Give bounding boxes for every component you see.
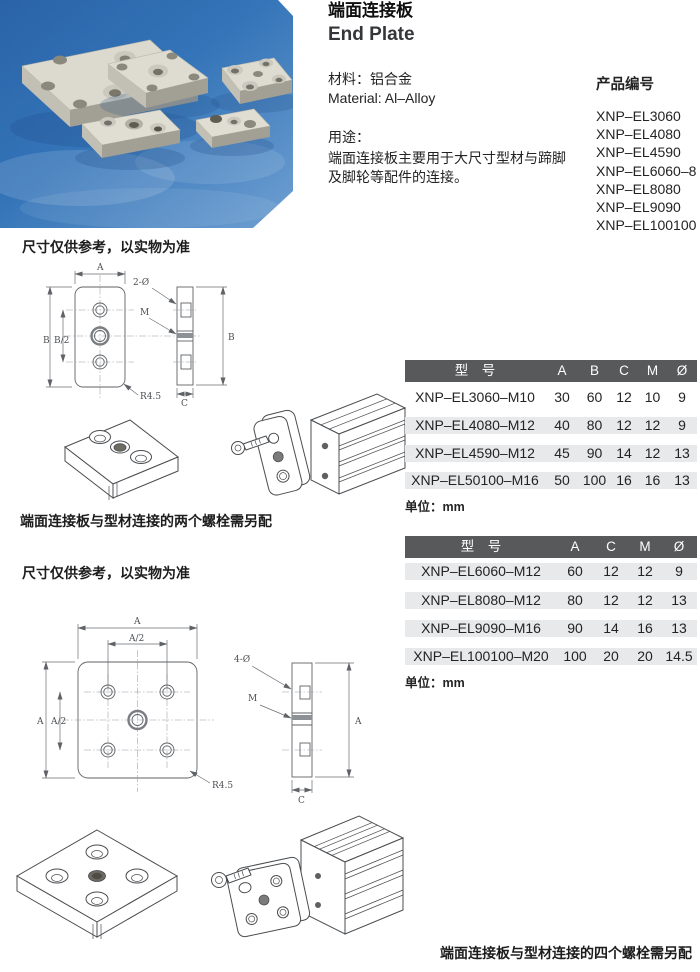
disclaimer-note-2: 尺寸仅供参考，以实物为准: [22, 563, 190, 583]
isometric-square-plate: [15, 812, 190, 947]
value-cell: 12: [629, 563, 661, 580]
value-cell: 80: [557, 592, 593, 609]
catalog-page: 端面连接板 End Plate 材料：铝合金 Material: Al–Allo…: [0, 0, 700, 972]
value-cell: 10: [638, 389, 667, 406]
value-cell: 12: [610, 389, 638, 406]
value-cell: 14: [610, 445, 638, 462]
dim-column-header: M: [638, 360, 667, 382]
table-row: XNP–EL50100–M1650100161613: [405, 472, 697, 489]
value-cell: 40: [545, 417, 579, 434]
assembly-drawing-four-bolt: [205, 806, 410, 972]
usage-heading: 用途：: [328, 128, 370, 146]
dim-label-a-side: A: [354, 717, 362, 727]
value-cell: 20: [593, 648, 629, 665]
product-code-item: XNP–EL9090: [596, 198, 696, 216]
table-row: XNP–EL100100–M20100202014.5: [405, 648, 697, 665]
value-cell: 30: [545, 389, 579, 406]
value-cell: 90: [557, 620, 593, 637]
usage-line-1: 端面连接板主要用于大尺寸型材与蹄脚: [328, 149, 566, 167]
product-photo-image: [0, 0, 295, 228]
caption-four-bolts: 端面连接板与型材连接的四个螺栓需另配: [405, 943, 692, 963]
table-row: XNP–EL9090–M1690141613: [405, 620, 697, 637]
model-column-header: 型 号: [405, 360, 545, 382]
caption-two-bolts: 端面连接板与型材连接的两个螺栓需另配: [20, 511, 272, 531]
radius-label: R4.5: [140, 392, 161, 402]
value-cell: 60: [557, 563, 593, 580]
model-cell: XNP–EL100100–M20: [405, 648, 557, 665]
model-cell: XNP–EL4080–M12: [405, 417, 545, 434]
model-cell: XNP–EL9090–M16: [405, 620, 557, 637]
value-cell: 13: [667, 472, 697, 489]
page-title-cn: 端面连接板: [328, 0, 413, 22]
product-codes-list: XNP–EL3060XNP–EL4080XNP–EL4590XNP–EL6060…: [596, 107, 696, 234]
dimension-drawing-square-plate: A A/2 A A/2 R4.5 4-Ø M A C: [28, 612, 368, 812]
radius-label-2: R4.5: [212, 781, 233, 791]
usage-line-2: 及脚轮等配件的连接。: [328, 168, 468, 186]
leader-label-holes-2: 4-Ø: [234, 654, 250, 665]
value-cell: 16: [610, 472, 638, 489]
dim-column-header: Ø: [667, 360, 697, 382]
dim-column-header: B: [579, 360, 610, 382]
value-cell: 20: [629, 648, 661, 665]
dim-label-a-left: A: [36, 717, 44, 727]
dim-label-b2: B/2: [54, 336, 69, 346]
dim-label-a2-left: A/2: [50, 717, 66, 727]
table-row: XNP–EL3060–M10306012109: [405, 389, 697, 406]
dim-column-header: C: [593, 536, 629, 558]
value-cell: 12: [610, 417, 638, 434]
value-cell: 90: [579, 445, 610, 462]
value-cell: 50: [545, 472, 579, 489]
table-row: XNP–EL4080–M12408012129: [405, 417, 697, 434]
value-cell: 14: [593, 620, 629, 637]
value-cell: 80: [579, 417, 610, 434]
value-cell: 12: [638, 417, 667, 434]
product-code-item: XNP–EL3060: [596, 107, 696, 125]
value-cell: 9: [667, 389, 697, 406]
dim-label-c-2: C: [298, 796, 305, 806]
value-cell: 12: [629, 592, 661, 609]
dim-column-header: M: [629, 536, 661, 558]
product-codes-heading: 产品编号: [596, 76, 654, 94]
page-title-en: End Plate: [328, 23, 415, 47]
dim-label-a: A: [96, 263, 104, 273]
value-cell: 100: [579, 472, 610, 489]
model-cell: XNP–EL3060–M10: [405, 389, 545, 406]
product-code-item: XNP–EL8080: [596, 180, 696, 198]
dim-column-header: Ø: [661, 536, 697, 558]
value-cell: 60: [579, 389, 610, 406]
dim-label-a-top: A: [133, 617, 141, 627]
model-cell: XNP–EL8080–M12: [405, 592, 557, 609]
product-code-item: XNP–EL6060–8: [596, 162, 696, 180]
value-cell: 13: [667, 445, 697, 462]
value-cell: 12: [593, 592, 629, 609]
isometric-rect-plate: [35, 408, 195, 513]
spec-table-square-plates: 型 号ACMØXNP–EL6060–M126012129XNP–EL8080–M…: [405, 536, 697, 691]
value-cell: 9: [661, 563, 697, 580]
disclaimer-note-1: 尺寸仅供参考，以实物为准: [22, 237, 190, 257]
model-column-header: 型 号: [405, 536, 557, 558]
value-cell: 16: [629, 620, 661, 637]
leader-label-thread: M: [140, 308, 149, 318]
material-cn: 材料：铝合金: [328, 70, 412, 88]
dim-label-b-side: B: [228, 333, 235, 343]
product-code-item: XNP–EL100100: [596, 216, 696, 234]
product-code-item: XNP–EL4590: [596, 143, 696, 161]
dimension-drawing-rect-plate: A B B/2 2-Ø M B C R4.5: [30, 258, 245, 408]
model-cell: XNP–EL6060–M12: [405, 563, 557, 580]
unit-note: 单位：mm: [405, 496, 697, 515]
assembly-drawing-two-bolt: [225, 390, 405, 515]
value-cell: 45: [545, 445, 579, 462]
product-code-item: XNP–EL4080: [596, 125, 696, 143]
material-en: Material: Al–Alloy: [328, 89, 435, 107]
product-photo: [0, 0, 295, 228]
spec-table-rect-plates: 型 号ABCMØXNP–EL3060–M10306012109XNP–EL408…: [405, 360, 697, 515]
model-cell: XNP–EL50100–M16: [405, 472, 545, 489]
leader-label-holes: 2-Ø: [133, 277, 149, 288]
value-cell: 13: [661, 620, 697, 637]
table-row: XNP–EL6060–M126012129: [405, 563, 697, 580]
dim-column-header: C: [610, 360, 638, 382]
dim-label-a2-top: A/2: [128, 634, 144, 644]
value-cell: 12: [593, 563, 629, 580]
value-cell: 9: [667, 417, 697, 434]
model-cell: XNP–EL4590–M12: [405, 445, 545, 462]
table-row: XNP–EL4590–M124590141213: [405, 445, 697, 462]
value-cell: 14.5: [661, 648, 697, 665]
value-cell: 12: [638, 445, 667, 462]
dim-column-header: A: [557, 536, 593, 558]
leader-label-thread-2: M: [248, 694, 257, 704]
dim-label-b: B: [43, 336, 50, 346]
value-cell: 13: [661, 592, 697, 609]
value-cell: 16: [638, 472, 667, 489]
unit-note: 单位：mm: [405, 672, 697, 691]
table-row: XNP–EL8080–M1280121213: [405, 592, 697, 609]
value-cell: 100: [557, 648, 593, 665]
dim-column-header: A: [545, 360, 579, 382]
